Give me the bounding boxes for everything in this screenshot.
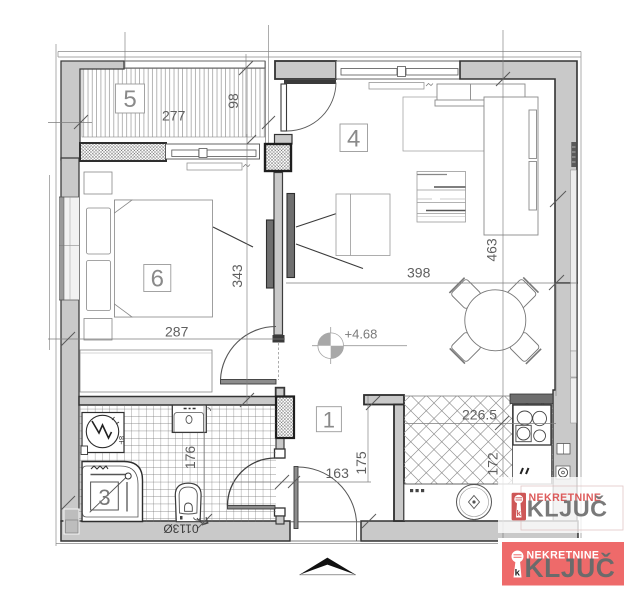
svg-text:98: 98	[225, 93, 241, 109]
svg-text:343: 343	[229, 264, 245, 288]
svg-text:463: 463	[484, 238, 500, 262]
svg-text:226.5: 226.5	[462, 407, 497, 423]
svg-text:277: 277	[162, 108, 186, 124]
svg-text:+4.68: +4.68	[345, 327, 378, 342]
svg-text:1: 1	[323, 408, 335, 433]
svg-text:0113Ø: 0113Ø	[163, 522, 198, 536]
svg-text:KLJUČ: KLJUČ	[527, 495, 608, 522]
svg-text:176: 176	[182, 446, 198, 470]
svg-text:8F: 8F	[117, 436, 124, 445]
svg-text:KLJUČ: KLJUČ	[525, 553, 616, 583]
svg-text:k: k	[516, 509, 521, 518]
svg-text:6: 6	[151, 266, 164, 293]
svg-text:287: 287	[165, 324, 189, 340]
svg-text:5: 5	[123, 86, 136, 113]
svg-text:398: 398	[407, 265, 431, 281]
svg-text:163: 163	[326, 465, 350, 481]
svg-text:172: 172	[485, 452, 501, 476]
svg-text:3: 3	[98, 485, 110, 510]
svg-text:k: k	[515, 568, 521, 579]
svg-text:4: 4	[347, 126, 360, 153]
svg-text:175: 175	[353, 451, 369, 475]
